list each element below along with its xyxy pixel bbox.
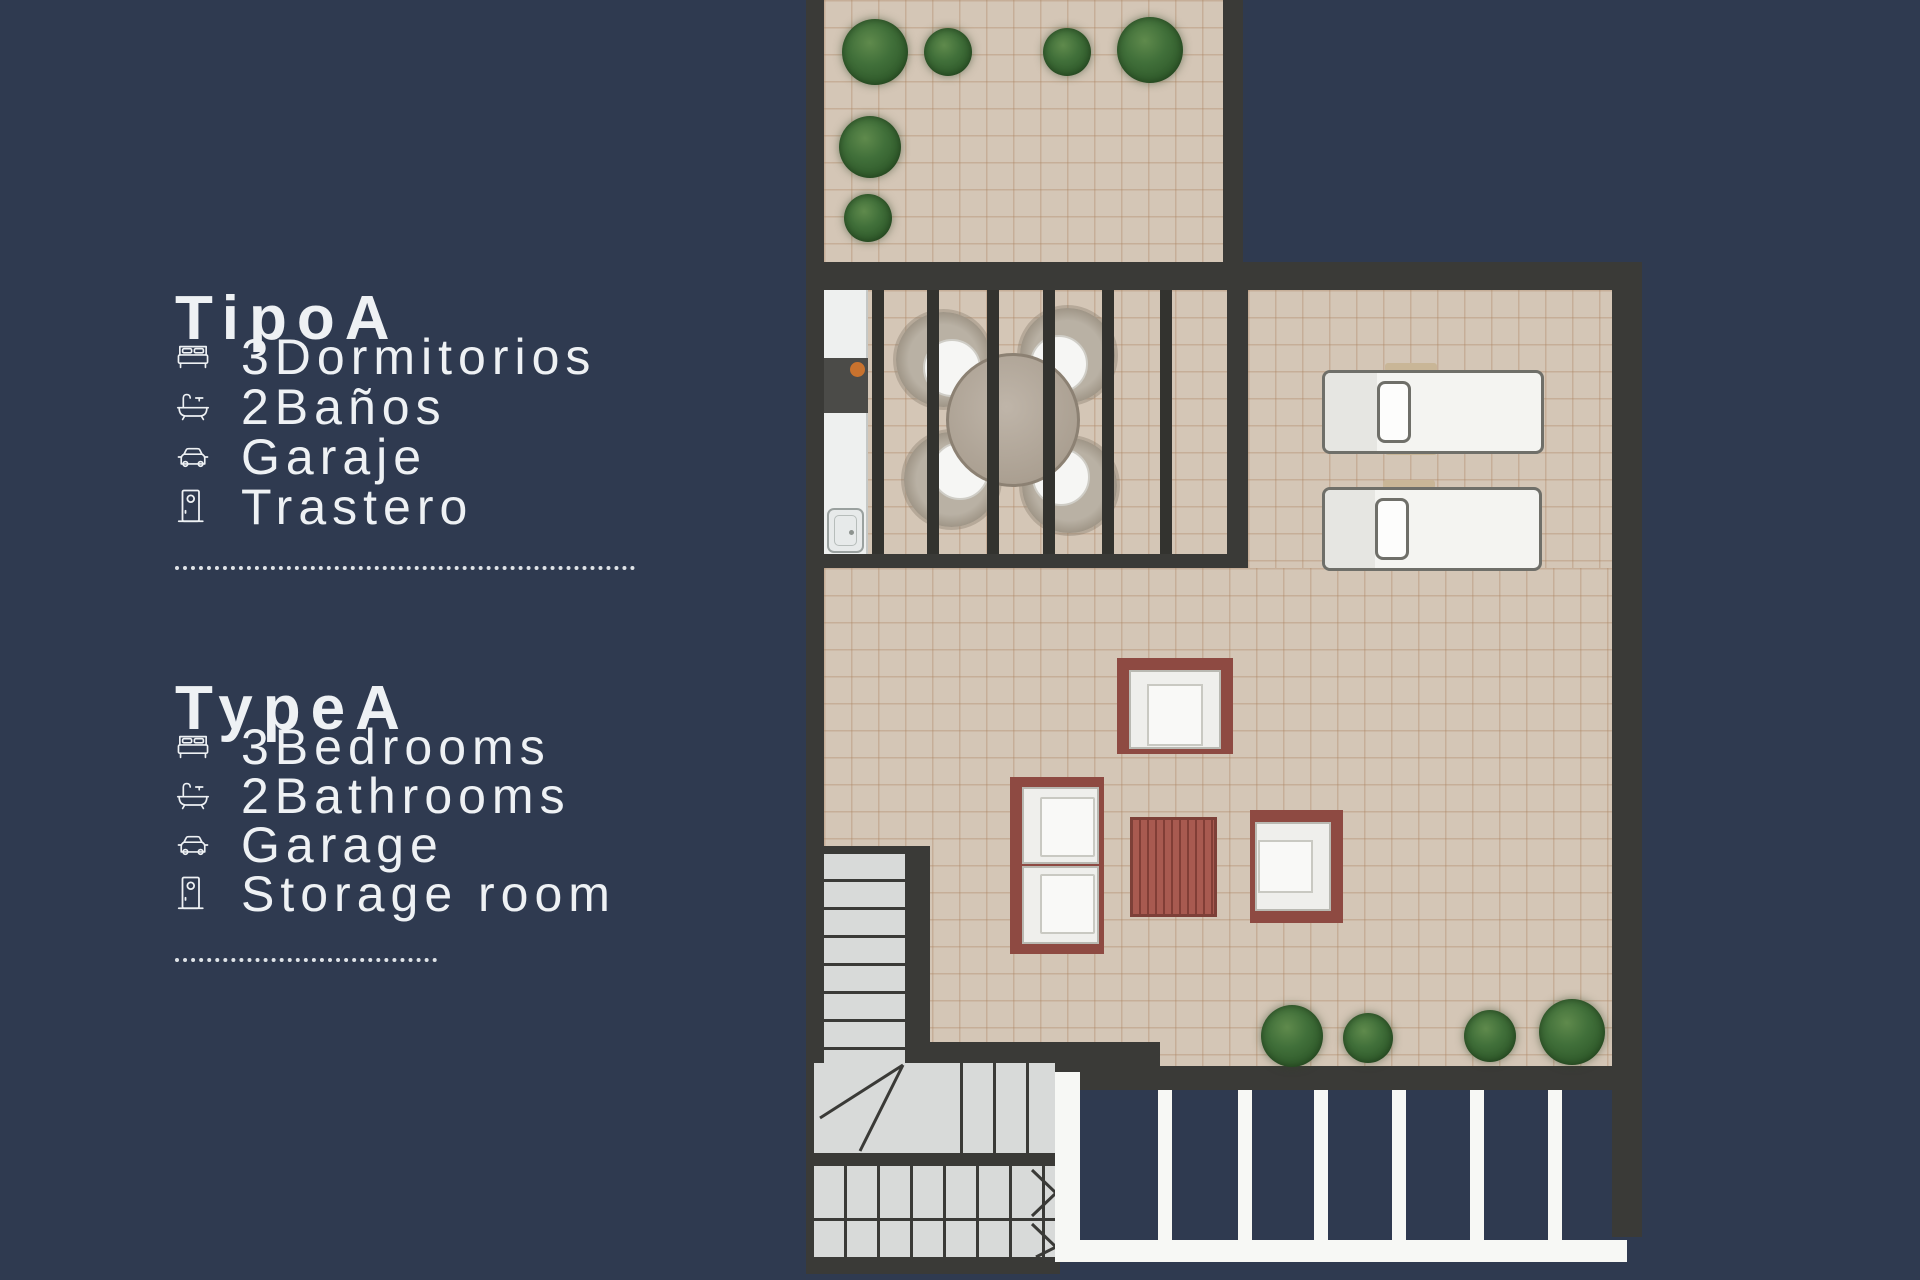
stair-landing-winder (814, 1063, 1055, 1153)
stair-flight-upper (824, 854, 905, 1063)
armchair-seat (1147, 684, 1203, 746)
lounger-head-section (1325, 373, 1377, 451)
pergola-slat (872, 290, 884, 554)
plant-bush (844, 194, 892, 242)
stair-flight-divider (814, 1218, 1055, 1221)
pergola-slat (1043, 290, 1055, 554)
sofa-seat (1040, 797, 1095, 857)
legend-row-bathrooms-en: 2Bathrooms (175, 771, 616, 820)
sun-lounger (1322, 487, 1542, 571)
pergola-slat (1102, 290, 1114, 554)
legend-label: Trastero (241, 478, 473, 536)
separator-dotted-es (175, 566, 635, 570)
coffee-table (1130, 817, 1217, 917)
door-icon (175, 874, 215, 914)
lounger-headrest (1377, 381, 1411, 443)
legend-row-storage-en: Storage room (175, 869, 616, 918)
sofa (1010, 777, 1104, 954)
plant-bush (924, 28, 972, 76)
legend-items-en: 3Bedrooms 2Bathrooms Garage Storage room (175, 722, 616, 918)
trellis-slat (1158, 1090, 1172, 1242)
legend-label: Storage room (241, 865, 616, 923)
bed-icon (175, 340, 215, 374)
door-icon (175, 487, 215, 527)
legend-row-bedrooms-es: 3Dormitorios (175, 332, 596, 382)
legend-items-es: 3Dormitorios 2Baños Garaje Trastero (175, 332, 596, 532)
legend-row-storage-es: Trastero (175, 482, 596, 532)
trellis-slat (1470, 1090, 1484, 1242)
trellis-slat (1392, 1090, 1406, 1242)
stair-rail (806, 1153, 1055, 1166)
wall-terrace-bottom-right (1160, 1066, 1642, 1090)
bath-icon (175, 779, 215, 813)
sun-lounger (1322, 370, 1544, 454)
armchair-seat (1258, 840, 1313, 893)
separator-dotted-en (175, 958, 437, 962)
lounger-head-section (1325, 490, 1375, 568)
pergola-slat (927, 290, 939, 554)
tile-main-terrace (824, 568, 1612, 1068)
plant-bush (839, 116, 901, 178)
wall-stair-bottom (806, 1257, 1060, 1274)
plant-bush (1464, 1010, 1516, 1062)
wall-stair-top (824, 846, 905, 854)
trellis-slat (1548, 1090, 1562, 1242)
kitchen-counter-top (822, 290, 868, 358)
bed-icon (175, 730, 215, 764)
legend-row-garage-es: Garaje (175, 432, 596, 482)
trellis-slat (1314, 1090, 1328, 1242)
pergola-slat (1160, 290, 1172, 554)
wall-left (806, 0, 824, 1160)
armchair (1250, 810, 1343, 923)
stair-flight-middle (930, 1063, 1055, 1153)
plant-bush (1539, 999, 1605, 1065)
sofa-seat (1040, 874, 1095, 934)
legend-row-bathrooms-es: 2Baños (175, 382, 596, 432)
cooktop-burner (850, 362, 865, 377)
wall-stair-side (905, 846, 930, 1063)
stair-flight-lower (814, 1166, 1055, 1257)
wall-right (1612, 262, 1642, 1237)
trellis-slat (1238, 1090, 1252, 1242)
wall-upper-terrace-right (1223, 0, 1243, 262)
trellis-bottom-beam (1055, 1240, 1627, 1262)
car-icon (175, 442, 215, 472)
trellis-left-beam (1055, 1072, 1080, 1260)
plant-bush (842, 19, 908, 85)
brochure-slide: TipoA 3Dormitorios 2Baños Garaje (0, 0, 1920, 1280)
bath-icon (175, 390, 215, 424)
plant-bush (1261, 1005, 1323, 1067)
pergola-slat (987, 290, 999, 554)
kitchen-sink (827, 508, 864, 553)
lounger-headrest (1375, 498, 1409, 560)
car-icon (175, 830, 215, 860)
plant-bush (1043, 28, 1091, 76)
dining-table (946, 353, 1080, 487)
legend-row-bedrooms-en: 3Bedrooms (175, 722, 616, 771)
armchair (1117, 658, 1233, 754)
wall-pergola-right (1227, 290, 1248, 554)
plant-bush (1343, 1013, 1393, 1063)
legend-row-garage-en: Garage (175, 820, 616, 869)
plant-bush (1117, 17, 1183, 83)
wall-pergola-bottom (806, 554, 1248, 568)
wall-upper-horizontal (806, 262, 1642, 290)
